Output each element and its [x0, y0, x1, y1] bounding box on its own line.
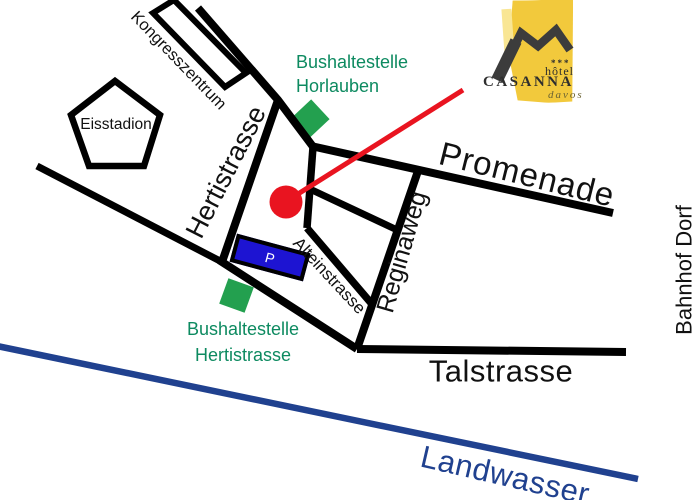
bus-stop-horlauben-line2: Horlauben	[296, 74, 408, 98]
bus-stop-hertistrasse-line2: Hertistrasse	[143, 342, 343, 368]
bus-stop-hertistrasse-label: Bushaltestelle Hertistrasse	[143, 316, 343, 368]
bus-stop-horlauben-line1: Bushaltestelle	[296, 50, 408, 74]
road-cross-street	[312, 190, 395, 229]
parking-label: P	[263, 249, 276, 267]
bus-stop-horlauben-label: Bushaltestelle Horlauben	[296, 50, 408, 98]
street-label-talstrasse: Talstrasse	[429, 356, 574, 389]
place-label-eisstadion: Eisstadion	[80, 117, 152, 133]
logo-city: davos	[548, 89, 584, 101]
place-label-bahnhof-dorf: Bahnhof Dorf	[672, 205, 695, 335]
hotel-marker-dot	[270, 186, 303, 219]
bus-stop-hertistrasse-line1: Bushaltestelle	[143, 316, 343, 342]
hotel-location-map: P Kongresszentrum Eisstadion Hertistrass…	[0, 0, 700, 500]
road-talstrasse	[357, 349, 626, 352]
